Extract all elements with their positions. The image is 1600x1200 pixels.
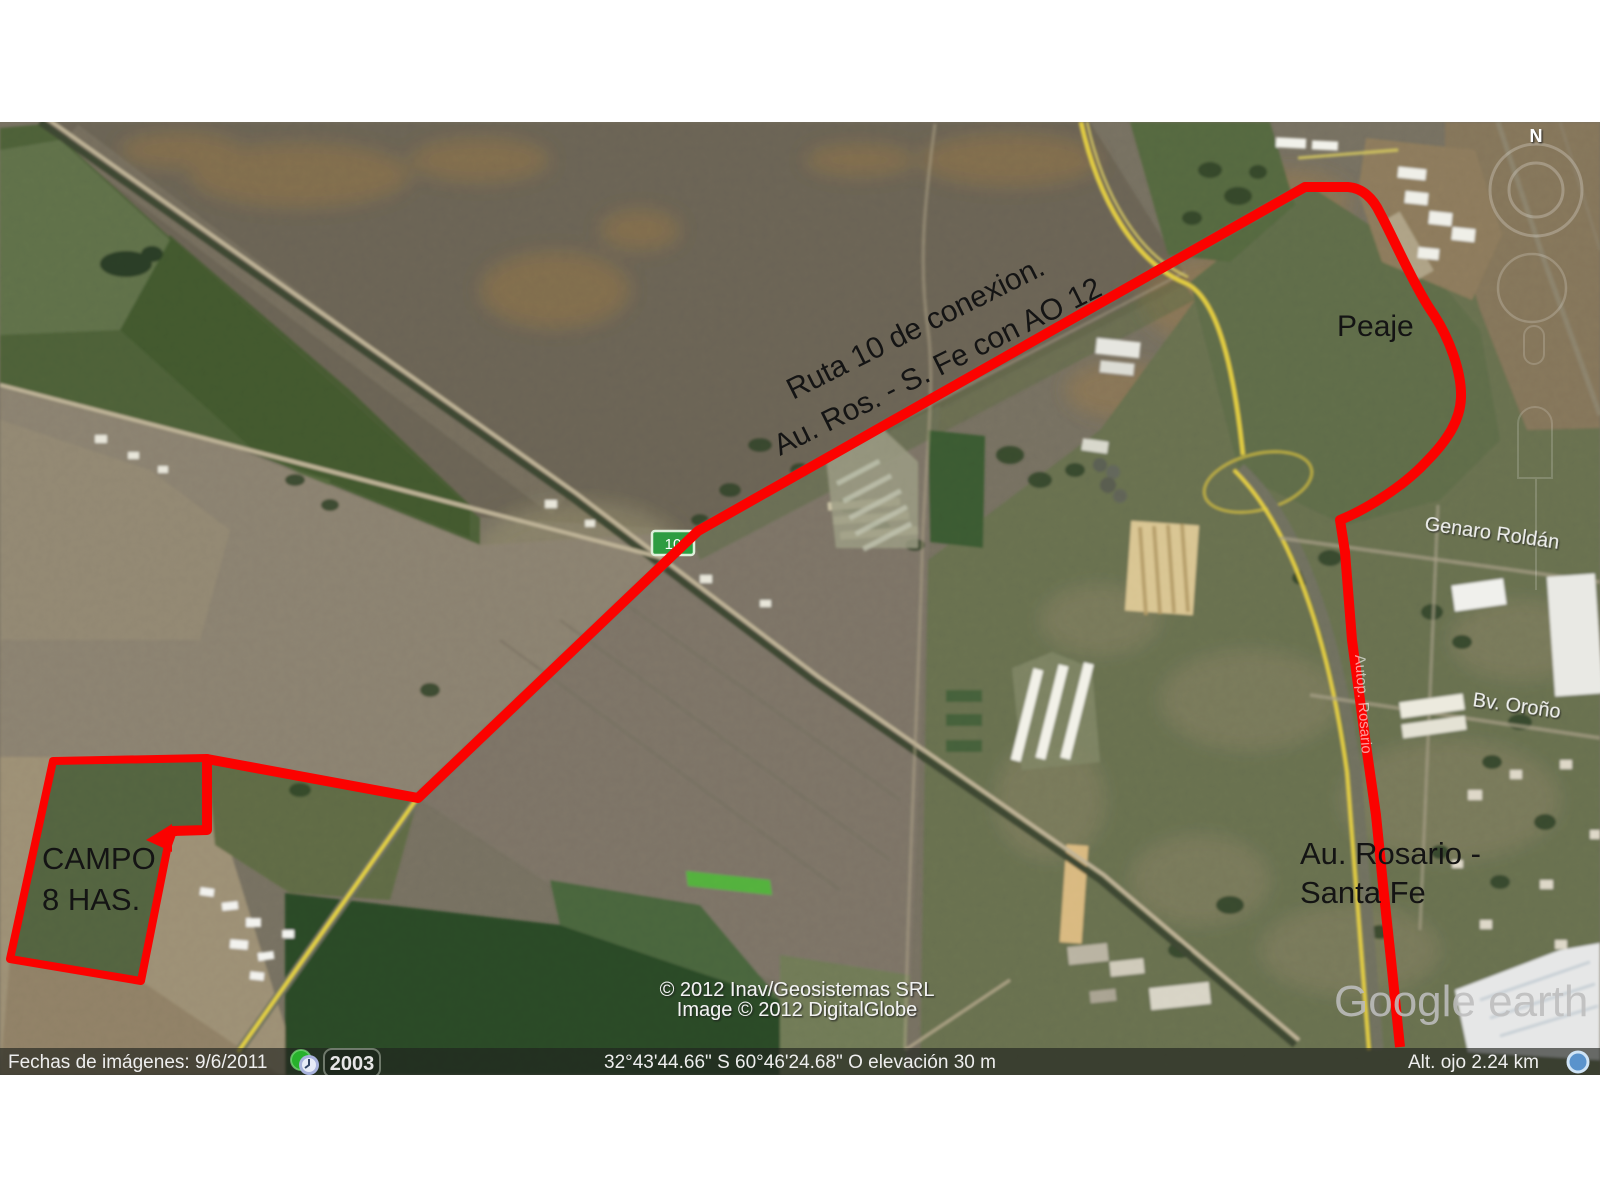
svg-text:Au. Rosario -: Au. Rosario - [1300,836,1481,871]
svg-text:N: N [1530,126,1543,146]
svg-text:Alt. ojo 2.24 km: Alt. ojo 2.24 km [1408,1052,1539,1073]
svg-text:Peaje: Peaje [1337,310,1414,343]
svg-text:2003: 2003 [330,1053,375,1075]
svg-text:Fechas de imágenes: 9/6/2011: Fechas de imágenes: 9/6/2011 [8,1052,268,1073]
svg-text:32°43'44.66" S 60°46'24.68" O: 32°43'44.66" S 60°46'24.68" O elevación … [604,1052,996,1073]
svg-text:8 HAS.: 8 HAS. [42,882,140,917]
svg-text:CAMPO: CAMPO [42,841,156,876]
svg-text:Image © 2012 DigitalGlobe: Image © 2012 DigitalGlobe [677,999,917,1021]
svg-text:Santa Fe: Santa Fe [1300,875,1426,910]
svg-text:Google earth: Google earth [1334,977,1588,1026]
svg-text:© 2012 Inav/Geosistemas SRL: © 2012 Inav/Geosistemas SRL [660,979,935,1001]
